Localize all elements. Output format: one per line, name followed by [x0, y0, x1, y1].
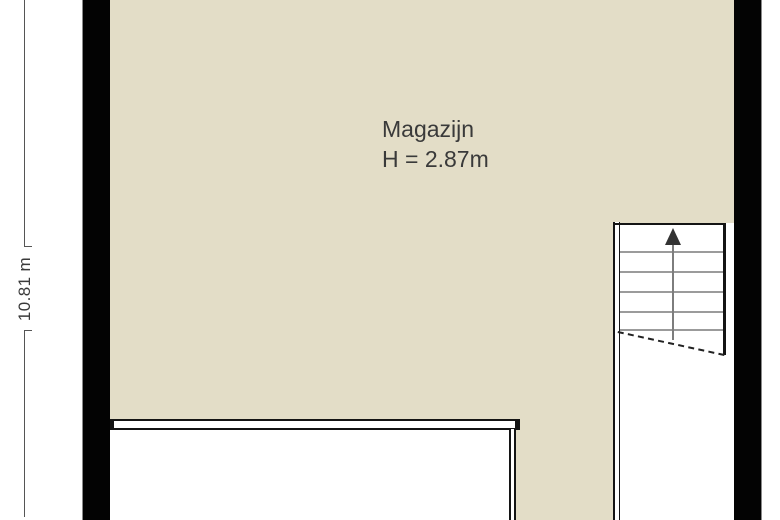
stairwell: [613, 223, 734, 520]
staircase-top-edge: [613, 223, 726, 225]
staircase-right-edge: [723, 223, 726, 355]
dimension-tick-bottom: [24, 330, 32, 331]
exterior-wall-left: [82, 0, 110, 520]
lower-room: [110, 429, 509, 520]
dimension-line-top-segment: [24, 0, 25, 246]
floor-plan: 10.81 m Magazijn H = 2.87m: [0, 0, 780, 520]
room-label-group: Magazijn H = 2.87m: [382, 114, 489, 174]
interior-wall-vertical: [509, 429, 516, 520]
room-height-label: H = 2.87m: [382, 144, 489, 174]
room-name-label: Magazijn: [382, 114, 489, 144]
interior-wall-horizontal: [110, 419, 520, 430]
stair-direction-arrow-shaft: [672, 243, 674, 340]
dimension-tick-top: [24, 246, 32, 247]
exterior-wall-right: [734, 0, 762, 520]
dimension-label: 10.81 m: [15, 257, 35, 321]
up-arrow-icon: [665, 228, 681, 245]
dimension-line-bottom-segment: [24, 331, 25, 517]
stairwell-left-wall: [613, 222, 620, 520]
